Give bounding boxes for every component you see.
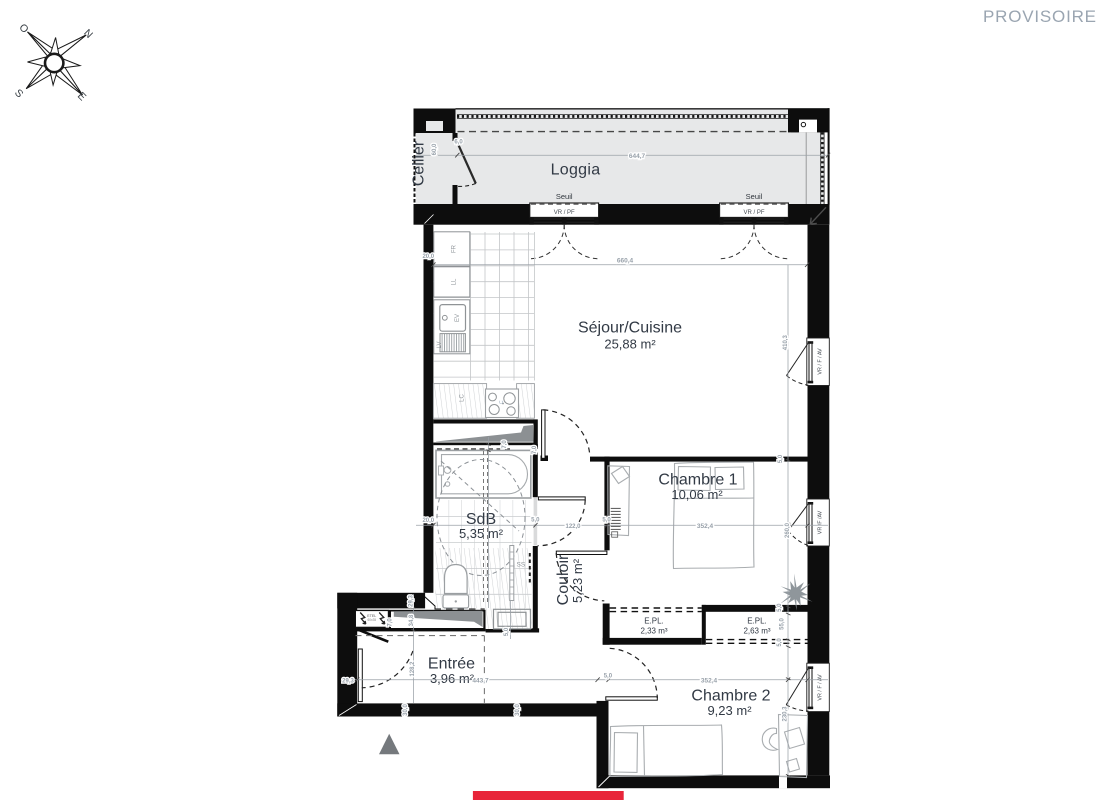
svg-text:PROVISOIRE: PROVISOIRE [983, 7, 1097, 26]
svg-text:410,3: 410,3 [783, 335, 789, 351]
svg-text:20,0: 20,0 [422, 518, 434, 524]
svg-text:E.PL.: E.PL. [747, 617, 767, 626]
svg-text:5,0: 5,0 [604, 673, 613, 679]
svg-text:2,33 m³: 2,33 m³ [640, 627, 667, 636]
svg-text:29,3: 29,3 [342, 678, 354, 684]
svg-text:7,0: 7,0 [388, 618, 394, 627]
svg-text:352,4: 352,4 [701, 678, 718, 685]
svg-text:60,0: 60,0 [432, 143, 438, 155]
svg-text:LC: LC [460, 393, 466, 401]
svg-text:29,3: 29,3 [409, 595, 415, 607]
svg-text:Seuil: Seuil [556, 192, 573, 201]
svg-text:Chambre 1: Chambre 1 [658, 472, 737, 489]
svg-text:VR /F /AV: VR /F /AV [818, 510, 824, 534]
svg-text:Séjour/Cuisine: Séjour/Cuisine [578, 320, 682, 337]
svg-text:2,63 m³: 2,63 m³ [743, 627, 770, 636]
svg-text:25,88 m²: 25,88 m² [604, 337, 656, 352]
svg-text:30,0: 30,0 [515, 704, 521, 716]
svg-text:7,0: 7,0 [502, 440, 508, 449]
svg-text:Loggia: Loggia [551, 162, 601, 179]
svg-text:10,06 m²: 10,06 m² [671, 487, 723, 502]
svg-text:6,0: 6,0 [454, 140, 463, 146]
svg-text:5,0: 5,0 [778, 454, 784, 463]
svg-text:5,0: 5,0 [504, 627, 510, 636]
svg-text:5,0: 5,0 [531, 517, 540, 523]
svg-text:128,2: 128,2 [410, 661, 416, 677]
svg-text:352,4: 352,4 [697, 523, 714, 530]
svg-text:34,8: 34,8 [409, 614, 415, 626]
svg-text:5,0: 5,0 [602, 517, 611, 523]
svg-text:Entrée: Entrée [428, 656, 475, 673]
svg-text:Seuil: Seuil [746, 192, 763, 201]
svg-text:VR / F / AV: VR / F / AV [818, 348, 824, 375]
svg-text:122,0: 122,0 [565, 524, 581, 530]
svg-text:9,23 m²: 9,23 m² [707, 703, 752, 718]
svg-text:ETEL: ETEL [367, 614, 376, 618]
svg-text:644,7: 644,7 [629, 153, 646, 160]
svg-text:30,0: 30,0 [403, 704, 409, 716]
svg-text:E.PL.: E.PL. [644, 617, 664, 626]
svg-text:55,0: 55,0 [780, 618, 786, 630]
svg-text:660,4: 660,4 [617, 257, 634, 264]
svg-text:3,96 m²: 3,96 m² [430, 671, 475, 686]
svg-text:VR / PF: VR / PF [743, 210, 764, 216]
svg-text:VR / PF: VR / PF [554, 210, 575, 216]
svg-text:20,0: 20,0 [422, 254, 434, 260]
svg-text:60x35: 60x35 [367, 618, 376, 622]
svg-text:EV: EV [455, 314, 461, 322]
svg-text:C: C [499, 400, 505, 404]
svg-text:5,0: 5,0 [777, 603, 783, 612]
svg-text:VR / F / AV: VR / F / AV [817, 674, 823, 701]
svg-text:FR: FR [452, 244, 458, 253]
svg-text:5,35 m²: 5,35 m² [459, 526, 504, 541]
svg-text:260,0: 260,0 [785, 522, 791, 538]
svg-text:Chambre 2: Chambre 2 [691, 688, 770, 705]
svg-text:LL: LL [452, 278, 458, 285]
svg-text:5,23 m²: 5,23 m² [570, 558, 585, 603]
svg-text:7,0: 7,0 [532, 445, 538, 454]
svg-text:SS: SS [517, 562, 526, 569]
svg-text:230,3: 230,3 [783, 706, 789, 722]
svg-text:LV: LV [437, 342, 443, 349]
svg-text:Cellier: Cellier [411, 140, 428, 186]
svg-text:443,7: 443,7 [472, 677, 489, 684]
svg-text:5,0: 5,0 [777, 638, 783, 647]
